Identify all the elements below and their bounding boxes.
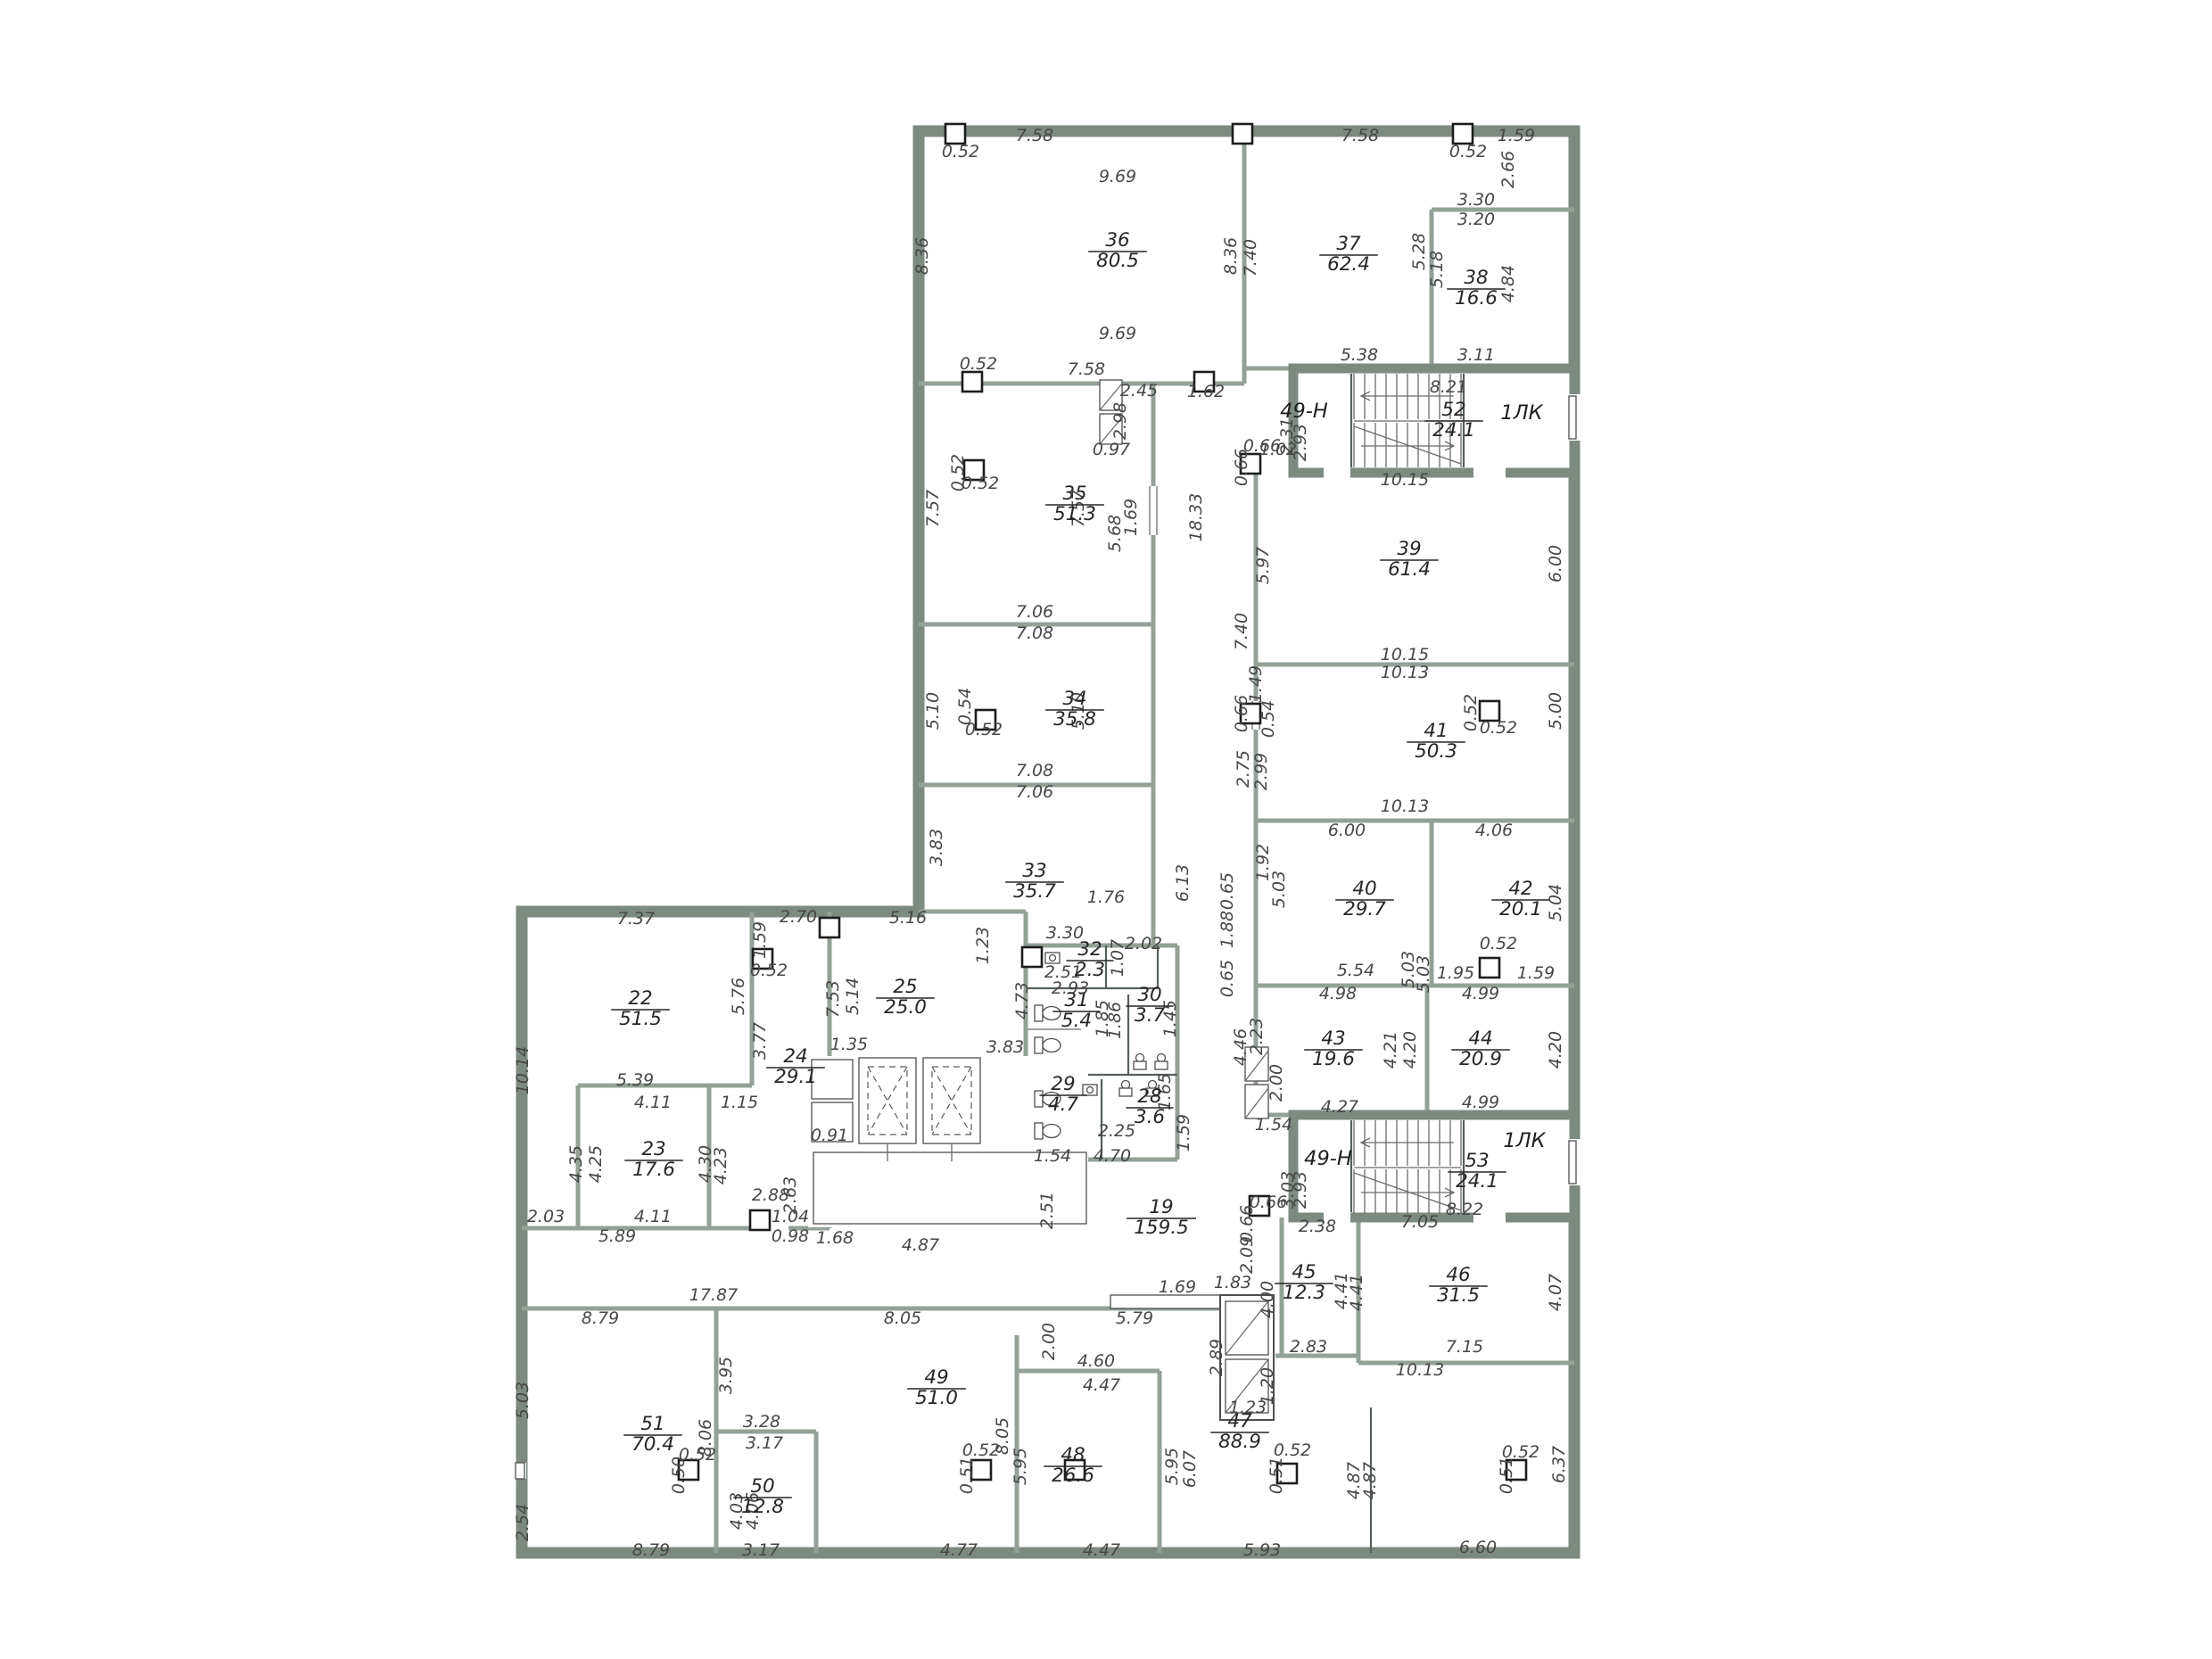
column-marker [1453, 124, 1473, 144]
dimension-text: 2.03 [527, 1207, 565, 1226]
dimension-text: 6.00 [1546, 545, 1565, 582]
dimension-text: 0.52 [948, 454, 968, 491]
dimension-text: 8.36 [912, 237, 932, 275]
dimension-text: 2.75 [1234, 750, 1253, 788]
dimension-text: 6.00 [1328, 821, 1366, 840]
dimension-text: 8.22 [1446, 1200, 1483, 1219]
dimension-text: 5.93 [1243, 1540, 1281, 1560]
dimension-text: 3.28 [743, 1412, 780, 1432]
dimension-text: 0.51 [1267, 1457, 1286, 1494]
dimension-text: 1.76 [1087, 887, 1125, 907]
dimension-text: 3.95 [716, 1357, 736, 1394]
dimension-text: 1.59 [750, 921, 770, 959]
dimension-text: 4.20 [1546, 1031, 1565, 1069]
dimension-text: 7.05 [1401, 1212, 1439, 1232]
dimension-text: 4.23 [711, 1147, 730, 1184]
column-marker [1233, 124, 1252, 144]
dimension-text: 5.95 [1162, 1448, 1182, 1485]
dimension-text: 3.17 [746, 1433, 783, 1453]
dimension-text: 1.15 [721, 1093, 758, 1112]
dimension-text: 4.99 [1462, 1093, 1499, 1112]
room-label-42: 4220.1 [1499, 878, 1542, 920]
dimension-text: 0.52 [1449, 142, 1487, 161]
dimension-text: 5.00 [1546, 692, 1565, 730]
dimension-text: 2.02 [1125, 934, 1162, 953]
column-marker [820, 918, 839, 937]
dimension-text: 7.58 [1341, 126, 1379, 145]
dimension-text: 2.54 [513, 1504, 532, 1541]
dimension-text: 7.57 [923, 490, 943, 527]
dimension-text: 5.79 [1116, 1308, 1153, 1328]
dimension-text: 0.91 [811, 1126, 848, 1145]
dimension-text: 5.28 [1409, 233, 1429, 270]
dimension-text: 2.83 [1290, 1337, 1327, 1357]
dimension-text: 8.21 [1430, 377, 1467, 397]
dimension-text: 4.35 [566, 1145, 586, 1183]
dimension-text: 10.13 [1381, 796, 1429, 816]
dimension-text: 5.10 [923, 692, 943, 730]
dimension-text: 2.99 [1251, 753, 1271, 790]
room-label-35: 3551.3 [1053, 483, 1096, 525]
dimension-text: 1.83 [1214, 1273, 1251, 1292]
room-label-30: 303.7 [1135, 984, 1166, 1027]
dimension-text: 2.23 [1247, 1018, 1267, 1055]
dimension-text: 4.99 [1462, 984, 1499, 1003]
dimension-text: 4.98 [1319, 984, 1357, 1003]
dimension-text: 4.47 [1083, 1375, 1120, 1395]
dimension-text: 0.51 [1497, 1457, 1516, 1494]
dimension-text: 1.68 [816, 1228, 854, 1248]
room-label-37: 3762.4 [1327, 233, 1370, 276]
dimension-text: 1.54 [1034, 1146, 1071, 1166]
dimension-text: 1.59 [1174, 1114, 1193, 1151]
dimension-text: 4.06 [1475, 821, 1513, 840]
dimension-text: 5.95 [1011, 1448, 1030, 1485]
dimension-text: 0.52 [1480, 718, 1517, 738]
dimension-text: 5.04 [1546, 884, 1565, 921]
dimension-text: 5.97 [1253, 547, 1273, 584]
dimension-text: 10.13 [1396, 1360, 1444, 1380]
stair-label: 1ЛК [1503, 1129, 1546, 1152]
stair-label: 49-Н [1304, 1147, 1352, 1170]
dimension-text: 10.13 [1381, 663, 1429, 682]
dimension-text: 10.15 [1381, 645, 1429, 664]
dimension-text: 6.37 [1549, 1446, 1569, 1483]
dimension-text: 5.18 [1427, 251, 1447, 288]
dimension-text: 5.89 [598, 1226, 636, 1246]
dimension-text: 8.36 [1221, 237, 1241, 275]
dimension-text: 0.50 [669, 1457, 689, 1494]
dimension-text: 4.47 [1083, 1540, 1120, 1560]
dimension-text: 3.20 [1457, 210, 1495, 229]
duct-windows [1100, 380, 1268, 1118]
room-label-24: 2429.1 [774, 1045, 817, 1088]
dimension-text: 1.35 [830, 1035, 868, 1054]
dimension-text: 4.25 [586, 1145, 606, 1183]
column-marker [962, 372, 982, 392]
dimension-text: 2.38 [1299, 1217, 1336, 1236]
dimension-text: 4.00 [1258, 1281, 1277, 1318]
room-label-39: 3961.4 [1388, 538, 1431, 581]
dimension-text: 3.83 [986, 1037, 1024, 1057]
dimension-text: 7.08 [1016, 623, 1053, 643]
dimension-text: 0.52 [1480, 934, 1517, 953]
dimension-text: 4.20 [1400, 1031, 1420, 1069]
dimension-text: 2.45 [1120, 381, 1158, 400]
floor-plan-page: 7.587.581.590.520.529.699.698.368.367.40… [0, 0, 2212, 1659]
dimension-text: 7.40 [1232, 613, 1251, 650]
dimension-text: 0.66 [1232, 695, 1251, 732]
dimension-text: 2.51 [1037, 1192, 1057, 1229]
dimension-text: 1.59 [1498, 126, 1535, 145]
dimension-text: 7.58 [1068, 359, 1105, 379]
room-label-45: 4512.3 [1283, 1261, 1325, 1304]
dimension-text: 5.54 [1337, 961, 1374, 980]
column-marker [750, 1210, 770, 1230]
room-label-36: 3680.5 [1096, 229, 1139, 272]
dimension-text: 7.06 [1016, 602, 1053, 622]
dimension-text: 2.89 [1207, 1339, 1226, 1376]
dimension-text: 8.79 [582, 1308, 619, 1328]
dimension-text: 7.58 [1016, 126, 1053, 145]
dimension-text: 2.00 [1267, 1064, 1286, 1102]
dimension-text: 7.40 [1241, 239, 1260, 276]
dimension-text: 5.76 [729, 978, 748, 1015]
dimension-text: 3.11 [1457, 345, 1495, 365]
dimension-text: 4.11 [634, 1207, 672, 1226]
room-label-33: 3335.7 [1013, 860, 1056, 903]
room-label-31: 315.4 [1061, 989, 1092, 1032]
dimension-text: 0.52 [750, 961, 788, 980]
dimension-text: 0.65 [1217, 872, 1237, 910]
dimension-text: 8.79 [632, 1540, 670, 1560]
dimension-text: 8.05 [884, 1308, 921, 1328]
dimension-text: 4.11 [634, 1093, 672, 1112]
dimension-text: 5.39 [616, 1070, 654, 1090]
dimension-text: 7.53 [823, 980, 843, 1018]
room-label-28: 283.6 [1135, 1085, 1165, 1128]
floor-plan-svg: 7.587.581.590.520.529.699.698.368.367.40… [0, 0, 2212, 1659]
room-label-25: 2525.0 [884, 976, 927, 1019]
plan-texts: 7.587.581.590.520.529.699.698.368.367.40… [513, 126, 1569, 1560]
dimension-text: 4.84 [1498, 265, 1518, 302]
column-marker [1480, 958, 1499, 978]
dimension-text: 1.04 [772, 1207, 809, 1226]
dimension-text: 1.23 [973, 927, 993, 964]
dimension-text: 1.62 [1187, 382, 1225, 401]
dimension-text: 4.70 [1094, 1146, 1131, 1166]
dimension-text: 5.16 [889, 908, 927, 928]
dimension-text: 2.09 [1237, 1236, 1257, 1274]
dimension-text: 7.08 [1016, 761, 1053, 780]
room-label-22: 2251.5 [619, 987, 662, 1030]
dimension-text: 4.07 [1546, 1274, 1565, 1311]
stair-label: 49-Н [1280, 400, 1328, 423]
dimension-text: 4.21 [1381, 1031, 1400, 1069]
dimension-text: 2.25 [1098, 1121, 1135, 1141]
room-label-40: 4029.7 [1343, 878, 1386, 920]
dimension-text: 2.98 [1110, 402, 1130, 440]
dimension-text: 4.41 [1347, 1274, 1366, 1311]
dimension-text: 10.15 [1381, 470, 1429, 490]
dimension-text: 0.52 [942, 142, 979, 161]
dimension-text: 10.14 [513, 1046, 532, 1094]
room-label-50: 5012.8 [741, 1475, 784, 1518]
dimension-text: 2.66 [1498, 151, 1518, 188]
room-label-29: 294.7 [1048, 1073, 1079, 1116]
dimension-text: 1.69 [1159, 1277, 1196, 1297]
dimension-text: 1.95 [1437, 963, 1474, 983]
dimension-text: 2.88 [752, 1185, 789, 1205]
dimension-text: 9.69 [1099, 324, 1136, 343]
room-label-32: 322.3 [1075, 938, 1105, 981]
room-label-46: 4631.5 [1437, 1264, 1480, 1307]
dimension-text: 1.86 [1105, 1002, 1125, 1039]
dimension-text: 4.27 [1321, 1097, 1358, 1117]
dimension-text: 3.17 [742, 1540, 780, 1560]
dimension-text: 4.87 [902, 1235, 939, 1255]
dimension-text: 3.30 [1457, 190, 1495, 210]
dimension-text: 5.38 [1341, 345, 1378, 365]
dimension-text: 4.60 [1077, 1351, 1115, 1371]
dimension-text: 4.77 [940, 1540, 978, 1560]
dimension-text: 6.13 [1173, 864, 1193, 902]
room-label-34: 3435.8 [1053, 688, 1096, 730]
dimension-text: 4.87 [1360, 1462, 1380, 1499]
dimension-text: 6.60 [1459, 1538, 1497, 1557]
column-marker [1022, 947, 1042, 967]
room-label-41: 4150.3 [1415, 720, 1457, 763]
dimension-text: 6.07 [1180, 1450, 1200, 1488]
dimension-text: 3.83 [927, 829, 946, 866]
dimension-text: 0.66 [1232, 449, 1251, 486]
dimension-text: 7.37 [617, 909, 655, 929]
dimension-text: 2.00 [1039, 1323, 1059, 1360]
room-label-44: 4420.9 [1459, 1028, 1502, 1070]
dimension-text: 18.33 [1186, 493, 1206, 541]
dimension-text: 0.52 [965, 720, 1003, 739]
dimension-text: 0.54 [1259, 700, 1278, 738]
dimension-text: 2.70 [780, 907, 817, 927]
dimension-text: 4.73 [1012, 982, 1032, 1019]
dimension-text: 1.54 [1255, 1115, 1292, 1135]
column-marker [945, 124, 965, 144]
dimension-text: 1.59 [1517, 963, 1555, 983]
room-label-51: 5170.4 [631, 1413, 674, 1456]
dimension-text: 3.77 [750, 1022, 770, 1060]
room-label-19: 19159.5 [1134, 1196, 1189, 1239]
dimension-text: 5.14 [843, 978, 863, 1015]
dimension-text: 0.97 [1093, 440, 1130, 459]
room-label-48: 4826.6 [1052, 1444, 1094, 1487]
dimension-text: 0.52 [960, 354, 997, 374]
room-label-23: 2317.6 [632, 1138, 675, 1181]
dimension-text: 1.02 [1259, 440, 1297, 459]
dimension-text: 1.88 [1217, 911, 1237, 948]
dimension-text: 0.98 [772, 1226, 809, 1246]
dimension-text: 5.03 [513, 1382, 532, 1419]
stair-label: 1ЛК [1500, 401, 1543, 425]
dimension-text: 0.51 [957, 1457, 977, 1494]
dimension-text: 5.03 [1414, 955, 1433, 993]
room-label-43: 4319.6 [1312, 1028, 1355, 1070]
dimension-text: 0.52 [1461, 694, 1481, 731]
dimension-text: 7.06 [1016, 782, 1053, 802]
dimension-text: 5.03 [1269, 871, 1289, 908]
room-label-38: 3816.6 [1455, 267, 1498, 310]
room-label-49: 4951.0 [915, 1366, 958, 1409]
dimension-text: 0.65 [1217, 960, 1237, 997]
dimension-text: 1.69 [1121, 499, 1141, 536]
dimension-text: 7.15 [1446, 1337, 1483, 1357]
dimension-text: 9.69 [1099, 167, 1136, 186]
dimension-text: 17.87 [689, 1285, 738, 1305]
